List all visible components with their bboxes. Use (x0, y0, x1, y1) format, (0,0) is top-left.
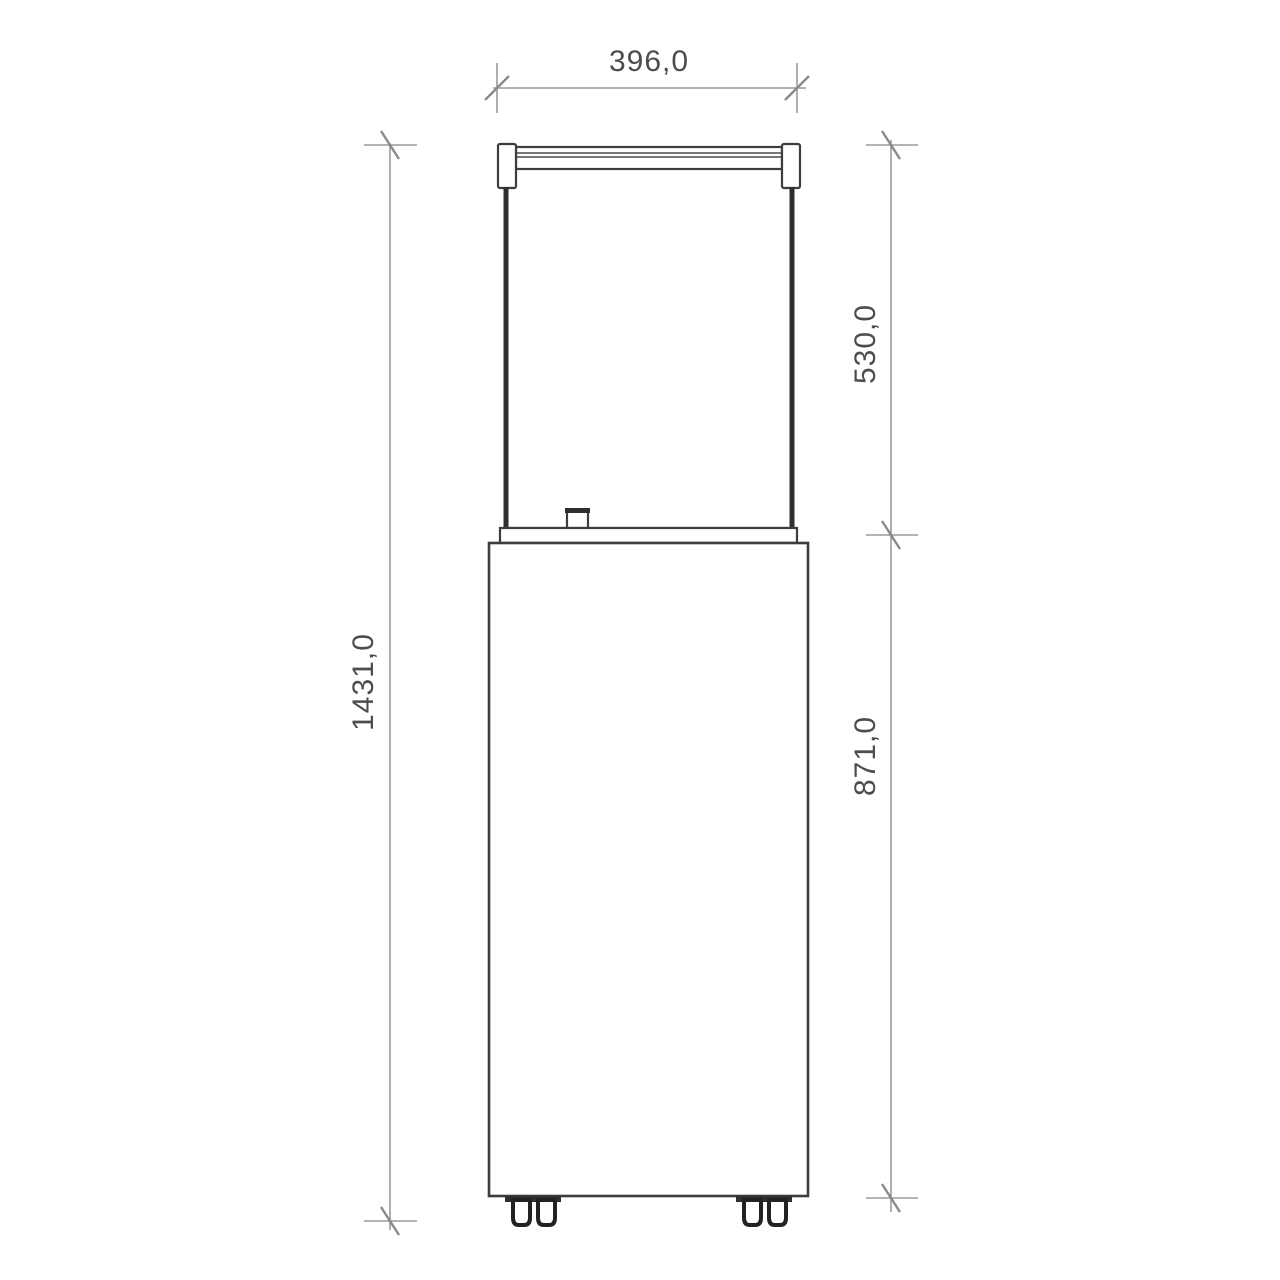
dim-label-width: 396,0 (609, 47, 689, 77)
heater-top-rail (498, 144, 800, 188)
cabinet-body (489, 543, 808, 1196)
dimension-right-heights-lines (866, 131, 918, 1212)
dim-label-total-height: 1431,0 (349, 633, 379, 731)
rail-end-cap-left (498, 144, 516, 188)
dim-label-lower-height: 871,0 (851, 716, 881, 796)
drawing-linework (0, 0, 1280, 1280)
caster-wheel (744, 1200, 761, 1225)
cabinet-top-plate (500, 528, 797, 543)
caster-right-pair (736, 1196, 792, 1225)
caster-left-pair (505, 1196, 561, 1225)
caster-wheel (513, 1200, 530, 1225)
heater-glass-enclosure (503, 187, 796, 528)
technical-drawing-canvas: 396,0 1431,0 530,0 871,0 (0, 0, 1280, 1280)
rail-end-cap-right (782, 144, 800, 188)
dim-label-upper-height: 530,0 (851, 304, 881, 384)
caster-wheel (538, 1200, 555, 1225)
caster-wheel (769, 1200, 786, 1225)
burner-knob (565, 508, 590, 528)
